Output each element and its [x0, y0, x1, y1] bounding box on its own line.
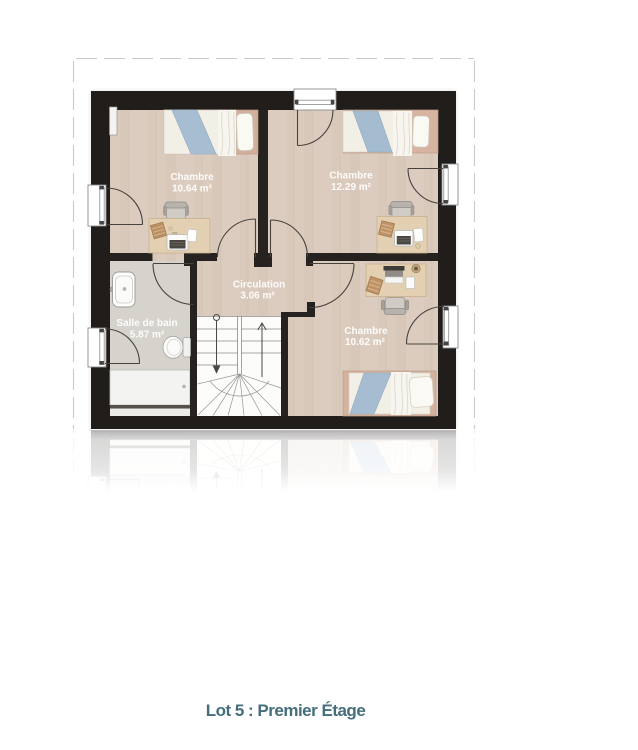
svg-text:3.06 m²: 3.06 m²	[240, 290, 275, 301]
svg-text:12.29 m²: 12.29 m²	[331, 182, 372, 193]
svg-text:Salle de bain: Salle de bain	[116, 318, 177, 329]
svg-text:Chambre: Chambre	[170, 172, 214, 183]
svg-text:Lot 5 : Premier Étage: Lot 5 : Premier Étage	[206, 701, 366, 720]
svg-text:5.87 m²: 5.87 m²	[130, 329, 165, 340]
svg-text:10.62 m²: 10.62 m²	[345, 337, 386, 348]
svg-text:Chambre: Chambre	[344, 326, 388, 337]
svg-text:Chambre: Chambre	[329, 171, 373, 182]
svg-text:10.64 m²: 10.64 m²	[172, 184, 213, 195]
svg-text:Circulation: Circulation	[233, 280, 285, 291]
